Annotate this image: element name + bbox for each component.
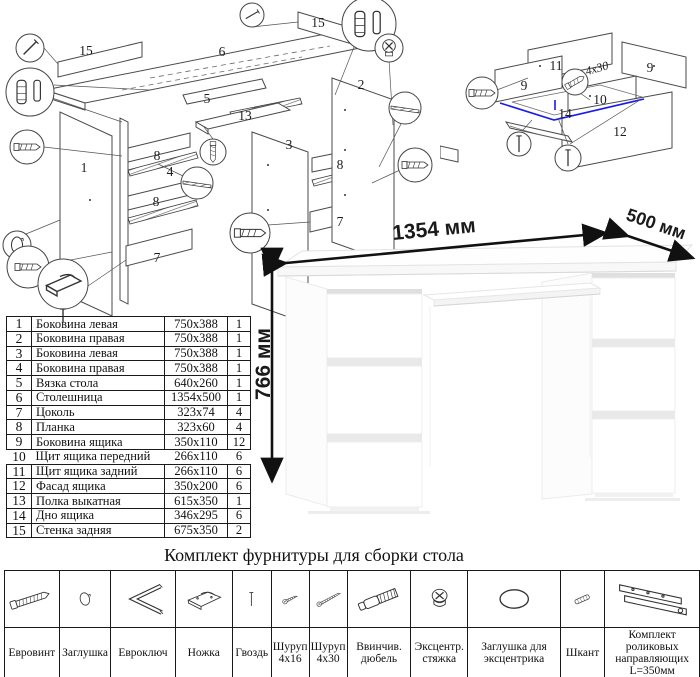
hardware-icon-cell xyxy=(309,571,347,628)
parts-cell-num: 14 xyxy=(7,508,32,523)
dowel-icon xyxy=(350,574,408,624)
parts-cell-num: 8 xyxy=(7,420,32,435)
parts-cell-qty: 1 xyxy=(228,494,251,509)
hardware-name-cell: Шкант xyxy=(560,628,604,677)
hardware-name-cell: Евровинт xyxy=(5,628,60,677)
euroscrew-icon xyxy=(402,162,428,169)
part-number-label: 2 xyxy=(358,77,365,92)
hardware-icon-cell xyxy=(59,571,111,628)
hardware-icon-cell xyxy=(232,571,271,628)
hardware-icon-cell xyxy=(468,571,561,628)
euroscrew-icon xyxy=(210,142,216,163)
hardware-name-cell: Ввинчив. дюбель xyxy=(347,628,411,677)
screw-small-icon xyxy=(273,574,307,624)
parts-cell-qty: 6 xyxy=(228,508,251,523)
parts-cell-qty: 12 xyxy=(228,435,251,450)
parts-cell-size: 615x350 xyxy=(165,494,228,509)
part-number-label: 14 xyxy=(558,106,572,121)
parts-cell-num: 3 xyxy=(7,346,32,361)
parts-cell-num: 5 xyxy=(7,376,32,391)
parts-cell-name: Боковина левая xyxy=(32,317,165,332)
parts-cell-size: 266x110 xyxy=(165,464,228,479)
part-number-label: 1 xyxy=(81,160,88,175)
parts-row: 13Полка выкатная615x3501 xyxy=(7,494,251,509)
hardware-name-cell: Эксцентр. стяжка xyxy=(411,628,468,677)
part-number-label: 15 xyxy=(311,15,325,30)
eccentric-cover-icon xyxy=(472,574,556,624)
parts-cell-num: 15 xyxy=(7,523,32,538)
parts-row: 10Щит ящика передний266x1106 xyxy=(7,449,251,464)
instruction-sheet: 15615521331848787 xyxy=(0,0,700,677)
hardware-icon-cell xyxy=(560,571,604,628)
nail-icon xyxy=(234,574,269,624)
parts-row: 15Стенка задняя675x3502 xyxy=(7,523,251,538)
hardware-names-row: ЕвровинтЗаглушкаЕвроключНожкаГвоздьШуруп… xyxy=(5,628,700,677)
drawer-exploded-diagram: 4x30 1199101412 xyxy=(440,0,700,210)
hardware-name-cell: Шуруп 4x16 xyxy=(271,628,309,677)
parts-cell-size: 346x295 xyxy=(165,508,228,523)
euroscrew-icon xyxy=(14,144,40,151)
parts-cell-num: 1 xyxy=(7,317,32,332)
parts-row: 3Боковина левая750x3881 xyxy=(7,346,251,361)
hardware-icon-cell xyxy=(111,571,175,628)
part-number-label: 4 xyxy=(167,164,174,179)
hardware-icons-row xyxy=(5,571,700,628)
parts-cell-qty: 1 xyxy=(228,376,251,391)
parts-cell-qty: 6 xyxy=(228,479,251,494)
parts-row: 1Боковина левая750x3881 xyxy=(7,317,251,332)
desk-drawing xyxy=(250,205,700,545)
hardware-icon-cell xyxy=(175,571,232,628)
parts-cell-qty: 6 xyxy=(228,449,251,464)
slides-icon xyxy=(609,574,695,624)
hardware-icon-cell xyxy=(5,571,60,628)
hardware-kit-title: Комплект фурнитуры для сборки стола xyxy=(0,545,628,566)
parts-list-table: 1Боковина левая750x38812Боковина правая7… xyxy=(6,316,251,538)
hardware-icon-cell xyxy=(605,571,700,628)
parts-cell-size: 640x260 xyxy=(165,376,228,391)
parts-cell-num: 13 xyxy=(7,494,32,509)
part-number-label: 5 xyxy=(204,91,211,106)
parts-cell-size: 323x74 xyxy=(165,405,228,420)
euroscrew-icon xyxy=(469,90,495,97)
parts-cell-qty: 1 xyxy=(228,390,251,405)
parts-cell-num: 12 xyxy=(7,479,32,494)
parts-cell-name: Щит ящика передний xyxy=(32,449,165,464)
parts-row: 8Планка323x604 xyxy=(7,420,251,435)
screw-long-icon xyxy=(311,574,345,624)
parts-cell-num: 10 xyxy=(7,449,32,464)
parts-row: 7Цоколь323x744 xyxy=(7,405,251,420)
part-number-label: 8 xyxy=(154,148,161,163)
hardware-name-cell: Гвоздь xyxy=(232,628,271,677)
parts-row: 12Фасад ящика350x2006 xyxy=(7,479,251,494)
hardware-name-cell: Заглушка для эксцентрика xyxy=(468,628,561,677)
parts-cell-size: 323x60 xyxy=(165,420,228,435)
parts-cell-num: 2 xyxy=(7,331,32,346)
euroscrew-icon xyxy=(15,264,41,271)
parts-cell-num: 7 xyxy=(7,405,32,420)
parts-cell-name: Полка выкатная xyxy=(32,494,165,509)
parts-cell-num: 4 xyxy=(7,361,32,376)
parts-cell-size: 750x388 xyxy=(165,317,228,332)
hardware-name-cell: Ножка xyxy=(175,628,232,677)
hardware-table: ЕвровинтЗаглушкаЕвроключНожкаГвоздьШуруп… xyxy=(4,570,700,677)
part-number-label: 12 xyxy=(613,124,627,139)
parts-cell-qty: 2 xyxy=(228,523,251,538)
hardware-name-cell: Шуруп 4x30 xyxy=(309,628,347,677)
hardware-icon-cell xyxy=(271,571,309,628)
part-number-label: 9 xyxy=(521,78,528,93)
parts-cell-size: 266x110 xyxy=(165,449,228,464)
parts-cell-qty: 4 xyxy=(228,420,251,435)
parts-cell-name: Боковина ящика xyxy=(32,435,165,450)
parts-cell-num: 6 xyxy=(7,390,32,405)
parts-cell-qty: 1 xyxy=(228,331,251,346)
part-number-label: 3 xyxy=(286,137,293,152)
parts-cell-size: 350x110 xyxy=(165,435,228,450)
part-number-label: 15 xyxy=(79,43,93,58)
parts-cell-qty: 1 xyxy=(228,346,251,361)
foot-icon xyxy=(178,574,230,624)
parts-cell-name: Боковина правая xyxy=(32,361,165,376)
hardware-name-cell: Комплект роликовых направляющих L=350мм xyxy=(605,628,700,677)
parts-cell-name: Дно ящика xyxy=(32,508,165,523)
part-number-label: 9 xyxy=(647,60,654,75)
part-number-label: 8 xyxy=(337,157,344,172)
parts-cell-name: Фасад ящика xyxy=(32,479,165,494)
parts-cell-name: Боковина правая xyxy=(32,331,165,346)
parts-cell-size: 1354x500 xyxy=(165,390,228,405)
parts-cell-size: 750x388 xyxy=(165,331,228,346)
parts-cell-name: Боковина левая xyxy=(32,346,165,361)
desk-body xyxy=(278,245,692,514)
parts-row: 2Боковина правая750x3881 xyxy=(7,331,251,346)
part-number-label: 13 xyxy=(238,108,252,123)
euroscrew-icon xyxy=(7,574,56,624)
hexkey-icon xyxy=(114,574,172,624)
parts-cell-name: Цоколь xyxy=(32,405,165,420)
part-number-label: 11 xyxy=(550,58,563,73)
parts-cell-num: 11 xyxy=(7,464,32,479)
hardware-name-cell: Евроключ xyxy=(111,628,175,677)
parts-row: 9Боковина ящика350x11012 xyxy=(7,435,251,450)
part-number-label: 10 xyxy=(593,92,607,107)
parts-row: 14Дно ящика346x2956 xyxy=(7,508,251,523)
parts-cell-name: Вязка стола xyxy=(32,376,165,391)
parts-row: 4Боковина правая750x3881 xyxy=(7,361,251,376)
parts-cell-qty: 1 xyxy=(228,317,251,332)
parts-cell-name: Щит ящика задний xyxy=(32,464,165,479)
dimension-height-label: 766 мм xyxy=(252,316,276,412)
plug-icon xyxy=(62,574,109,624)
part-number-label: 8 xyxy=(153,194,160,209)
parts-row: 11Щит ящика задний266x1106 xyxy=(7,464,251,479)
shkant-icon xyxy=(563,574,603,624)
desk-render: 1354 мм 500 мм 766 мм xyxy=(250,205,700,545)
parts-cell-num: 9 xyxy=(7,435,32,450)
hardware-icon-cell xyxy=(347,571,411,628)
parts-row: 6Столешница1354x5001 xyxy=(7,390,251,405)
hardware-icon-cell xyxy=(411,571,468,628)
parts-cell-name: Планка xyxy=(32,420,165,435)
parts-cell-size: 350x200 xyxy=(165,479,228,494)
parts-cell-qty: 1 xyxy=(228,361,251,376)
parts-cell-size: 675x350 xyxy=(165,523,228,538)
parts-cell-size: 750x388 xyxy=(165,346,228,361)
part-number-label: 7 xyxy=(154,250,161,265)
part-number-label: 6 xyxy=(219,44,226,59)
eccentric-icon xyxy=(414,574,465,624)
parts-cell-qty: 4 xyxy=(228,405,251,420)
parts-cell-size: 750x388 xyxy=(165,361,228,376)
parts-cell-name: Столешница xyxy=(32,390,165,405)
parts-row: 5Вязка стола640x2601 xyxy=(7,376,251,391)
hardware-name-cell: Заглушка xyxy=(59,628,111,677)
parts-cell-name: Стенка задняя xyxy=(32,523,165,538)
parts-cell-qty: 6 xyxy=(228,464,251,479)
